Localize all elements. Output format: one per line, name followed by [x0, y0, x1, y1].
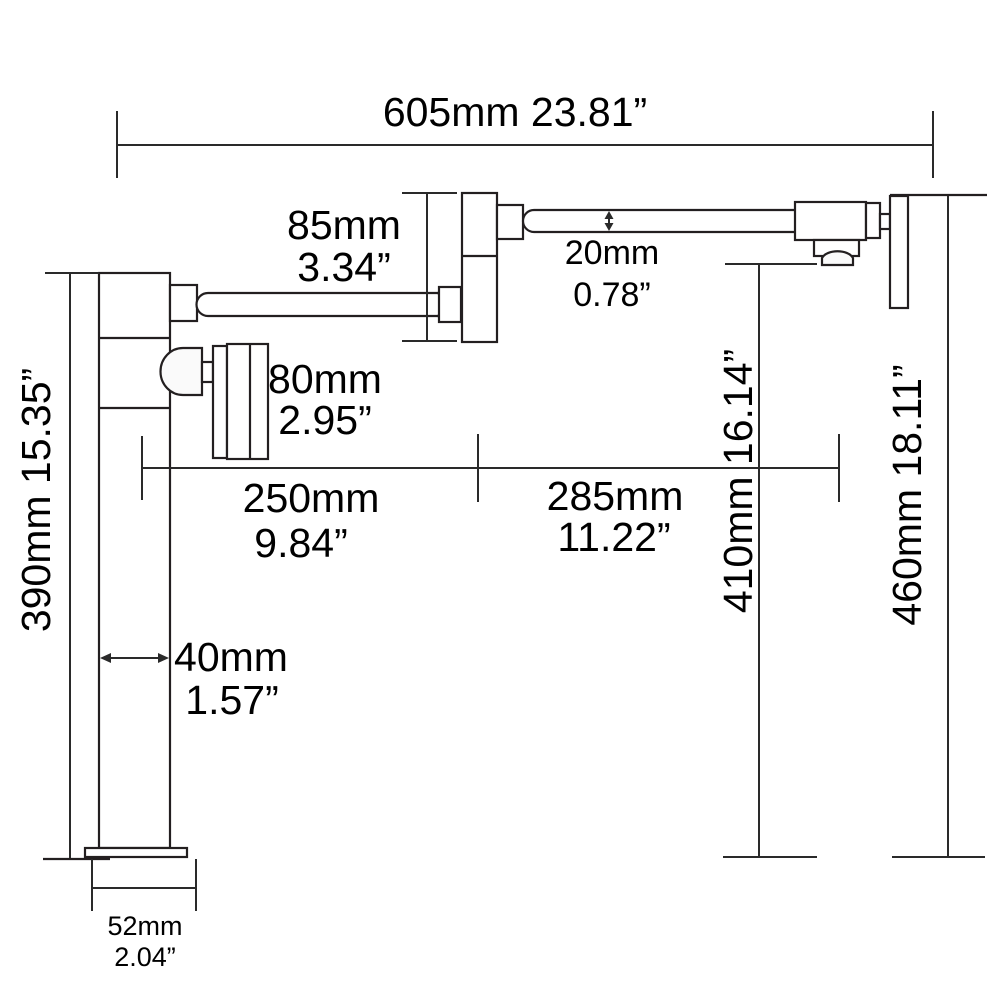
handle-length-label-mm: 80mm: [268, 356, 382, 402]
valve-handle-dome: [822, 251, 853, 265]
dim-spout-height: 410mm 16.14”: [715, 264, 817, 857]
dim-base-width: 52mm 2.04”: [92, 859, 196, 972]
wall-assembly-group: [795, 195, 987, 308]
faucet-drawing: [43, 193, 987, 859]
diagram-canvas: 605mm 23.81” 390mm 15.35” 85mm 3.34” 20m…: [0, 0, 1000, 1000]
handle-plate-outer: [227, 344, 268, 459]
fold-drop-label-inch: 3.34”: [297, 244, 390, 290]
base-flange: [85, 848, 187, 857]
deck-arm-bracket: [170, 285, 197, 321]
left-arm-reach-label-mm: 250mm: [243, 475, 380, 521]
wall-valve-block: [795, 202, 866, 240]
dim-fold-drop: 85mm 3.34”: [287, 193, 457, 341]
valve-block-cap: [866, 203, 880, 238]
spout-height-label: 410mm 16.14”: [715, 349, 761, 613]
handle-knob-dome: [161, 348, 203, 395]
upper-arm-connector: [497, 205, 523, 239]
deck-column-body: [99, 273, 170, 848]
total-width-label: 605mm 23.81”: [383, 89, 647, 135]
pot-filler-dimension-diagram: 605mm 23.81” 390mm 15.35” 85mm 3.34” 20m…: [0, 0, 1000, 1000]
left-arm-reach-label-inch: 9.84”: [254, 520, 347, 566]
dim-column-height: 390mm 15.35”: [13, 273, 99, 858]
base-width-label-inch: 2.04”: [114, 942, 176, 972]
pipe-diameter-label-inch: 0.78”: [573, 276, 651, 314]
handle-length-label-inch: 2.95”: [278, 397, 371, 443]
dim-handle-length: 80mm 2.95”: [268, 356, 382, 443]
deck-arm-pipe: [197, 293, 441, 316]
deck-arm-group: [170, 285, 461, 322]
right-arm-reach-label-mm: 285mm: [547, 473, 684, 519]
column-width-label-mm: 40mm: [174, 634, 288, 680]
handle-group: [161, 344, 269, 459]
dim-total-width: 605mm 23.81”: [117, 89, 933, 178]
wall-height-label: 460mm 18.11”: [884, 364, 930, 625]
handle-plate-inner: [213, 346, 227, 458]
column-width-label-inch: 1.57”: [185, 677, 278, 723]
base-width-label-mm: 52mm: [107, 911, 182, 941]
wall-connector-nub: [880, 214, 890, 229]
pipe-diameter-label-mm: 20mm: [565, 234, 659, 272]
wall-mount-plate: [890, 196, 908, 308]
deck-arm-end-connector: [439, 287, 461, 322]
handle-stem: [202, 362, 213, 382]
fold-drop-label-mm: 85mm: [287, 202, 401, 248]
right-arm-reach-label-inch: 11.22”: [557, 514, 670, 560]
column-height-label: 390mm 15.35”: [13, 368, 59, 632]
upper-arm-pipe: [523, 210, 795, 232]
swing-joint-body: [462, 193, 497, 342]
